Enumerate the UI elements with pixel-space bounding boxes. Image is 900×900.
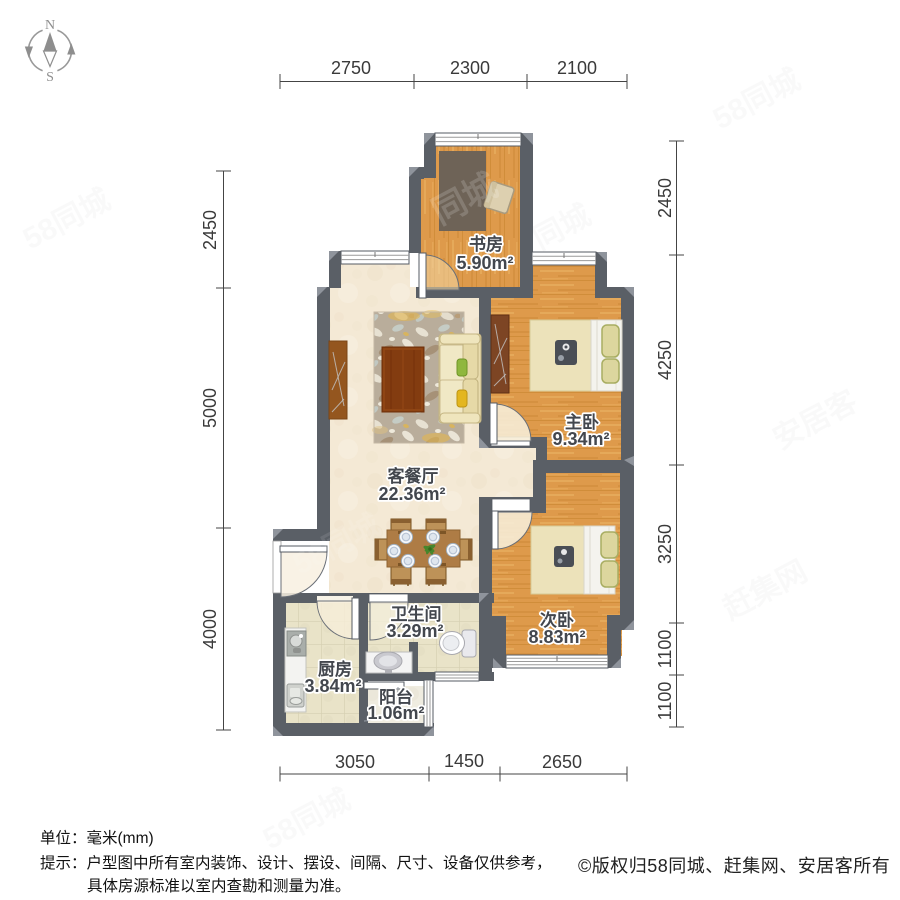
svg-text:9.34m²: 9.34m² bbox=[552, 429, 609, 449]
svg-text:1450: 1450 bbox=[444, 751, 484, 771]
svg-text:1100: 1100 bbox=[655, 682, 675, 721]
svg-text:3.29m²: 3.29m² bbox=[386, 621, 443, 641]
svg-text:3.84m²: 3.84m² bbox=[304, 676, 361, 696]
svg-text:5000: 5000 bbox=[200, 388, 220, 428]
svg-text:2450: 2450 bbox=[200, 210, 220, 250]
svg-text:2100: 2100 bbox=[557, 58, 597, 78]
svg-text:5.90m²: 5.90m² bbox=[456, 253, 513, 273]
svg-text:4000: 4000 bbox=[200, 609, 220, 649]
svg-text:3050: 3050 bbox=[335, 752, 375, 772]
svg-text:客餐厅: 客餐厅 bbox=[387, 466, 439, 486]
svg-text:2300: 2300 bbox=[450, 58, 490, 78]
svg-text:提示：户型图中所有室内装饰、设计、摆设、间隔、尺寸、设备仅供: 提示：户型图中所有室内装饰、设计、摆设、间隔、尺寸、设备仅供参考， bbox=[40, 854, 552, 872]
svg-text:具体房源标准以室内查勘和测量为准。: 具体房源标准以室内查勘和测量为准。 bbox=[87, 877, 351, 895]
svg-text:2650: 2650 bbox=[542, 752, 582, 772]
svg-text:书房: 书房 bbox=[469, 234, 503, 254]
svg-text:3250: 3250 bbox=[655, 524, 675, 564]
svg-text:©版权归58同城、赶集网、安居客所有: ©版权归58同城、赶集网、安居客所有 bbox=[578, 856, 890, 876]
svg-text:2450: 2450 bbox=[655, 178, 675, 218]
svg-text:8.83m²: 8.83m² bbox=[528, 627, 585, 647]
svg-text:单位：毫米(mm): 单位：毫米(mm) bbox=[40, 828, 154, 847]
svg-text:S: S bbox=[46, 70, 54, 85]
svg-text:1.06m²: 1.06m² bbox=[367, 703, 424, 723]
svg-text:2750: 2750 bbox=[331, 58, 371, 78]
svg-text:N: N bbox=[45, 18, 55, 33]
svg-text:22.36m²: 22.36m² bbox=[378, 484, 445, 504]
svg-text:4250: 4250 bbox=[655, 340, 675, 380]
svg-text:1100: 1100 bbox=[655, 630, 675, 669]
